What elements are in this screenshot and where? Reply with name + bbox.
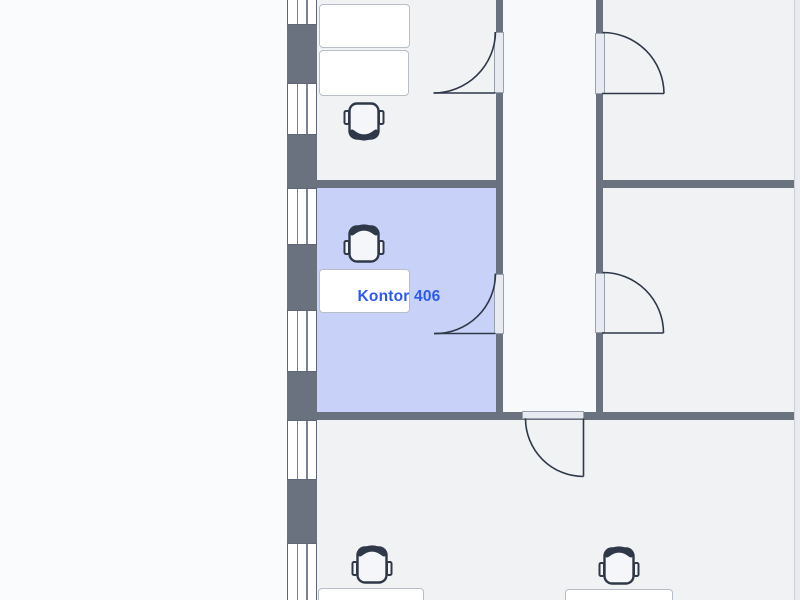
window-pane-divider <box>306 311 308 371</box>
desk <box>318 588 424 600</box>
corridor[interactable] <box>502 0 596 412</box>
window-pane-divider <box>297 189 299 244</box>
door-opening <box>595 273 605 334</box>
wall-mid-left <box>287 180 503 189</box>
desk <box>319 4 410 48</box>
window-pane-divider <box>297 0 299 24</box>
window <box>287 188 318 245</box>
door-opening <box>522 411 585 420</box>
window-pane-divider <box>297 311 299 371</box>
room-label-kontor-406: Kontor 406 <box>358 288 441 306</box>
room-bottom[interactable] <box>316 419 794 600</box>
floorplan-canvas[interactable]: Kontor 406 <box>0 0 800 600</box>
window-pane-divider <box>306 544 308 600</box>
window-pane-divider <box>306 84 308 134</box>
door-opening <box>595 33 605 94</box>
window <box>287 83 318 135</box>
desk <box>319 50 409 96</box>
door-opening <box>494 274 504 335</box>
window <box>287 543 318 600</box>
window <box>287 0 318 25</box>
wall-mid-right <box>596 180 795 189</box>
window-pane-divider <box>297 84 299 134</box>
window-pane-divider <box>306 189 308 244</box>
window-pane-divider <box>306 421 308 479</box>
window <box>287 420 318 480</box>
door-opening <box>494 32 504 93</box>
window-pane-divider <box>297 544 299 600</box>
window <box>287 310 318 372</box>
wall-right-exterior <box>794 0 800 600</box>
window-pane-divider <box>297 421 299 479</box>
room-mid-right[interactable] <box>602 188 794 412</box>
desk <box>565 589 673 600</box>
room-top-right[interactable] <box>602 0 794 180</box>
window-pane-divider <box>306 0 308 24</box>
